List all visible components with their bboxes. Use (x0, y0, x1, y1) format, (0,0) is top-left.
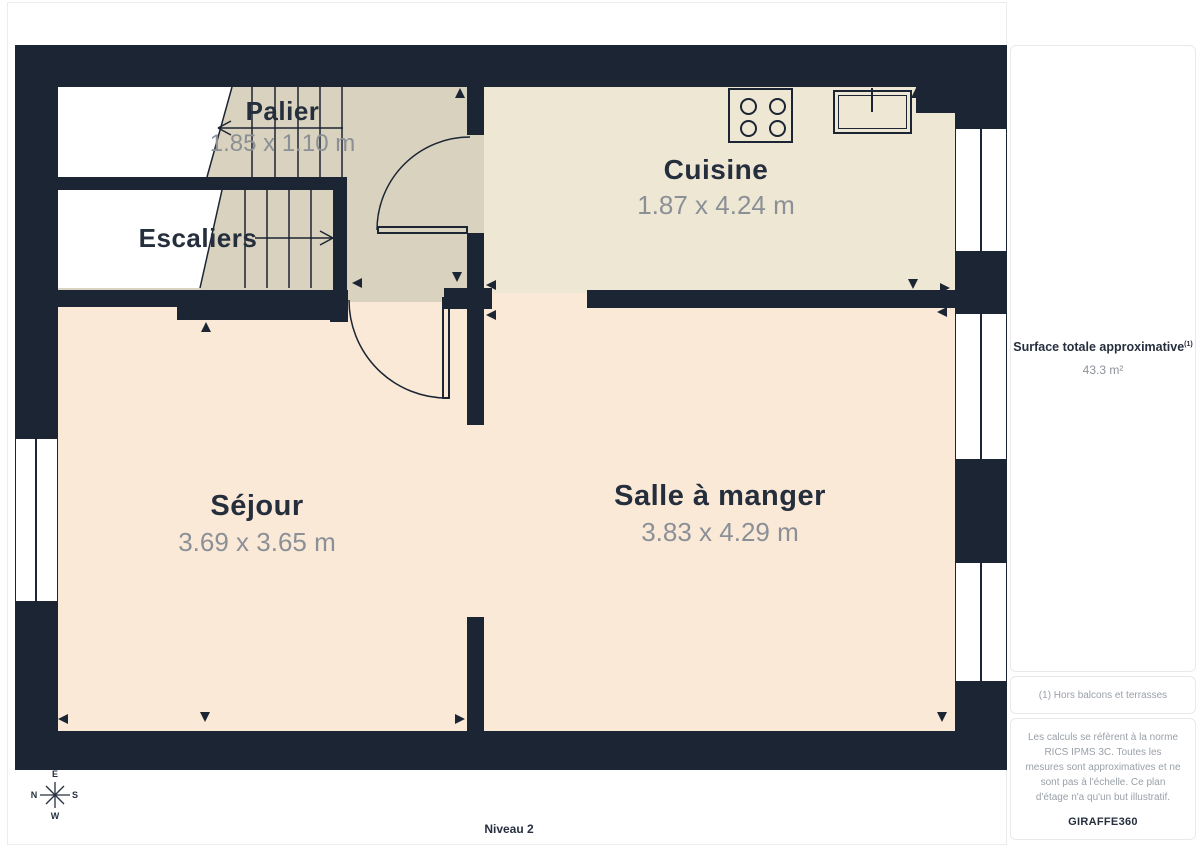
room-label-salle-a-manger: Salle à manger 3.83 x 4.29 m (570, 482, 870, 545)
dimension-arrow (200, 712, 210, 722)
room-dims: 3.69 x 3.65 m (132, 529, 382, 555)
dimension-arrow (911, 88, 921, 98)
dimension-arrow (937, 712, 947, 722)
dimension-arrow (474, 88, 484, 98)
stove-burner (740, 98, 757, 115)
sidebar-disclaimer-box: Les calculs se réfèrent à la norme RICS … (1010, 718, 1196, 840)
door-leaf (442, 297, 450, 399)
dimension-arrow (486, 280, 496, 290)
window-glass-line (980, 128, 982, 252)
room-name: Salle à manger (570, 482, 870, 511)
room-dims: 1.87 x 4.24 m (591, 192, 841, 218)
compass-letter-left: N (31, 790, 38, 800)
stove-burner (769, 120, 786, 137)
footnote-text: (1) Hors balcons et terrasses (1039, 688, 1167, 703)
compass-letter-right: S (72, 790, 78, 800)
wall-segment (58, 290, 347, 307)
brand-name: GIRAFFE (1068, 816, 1118, 828)
room-name: Escaliers (108, 225, 288, 251)
wall-segment (916, 87, 955, 113)
brand-logo: GIRAFFE360 (1068, 816, 1138, 828)
room-name: Cuisine (591, 156, 841, 184)
compass-letter-top: E (52, 769, 58, 779)
wall-segment (330, 290, 348, 322)
floor-doorway-sejour (348, 290, 444, 302)
room-label-cuisine: Cuisine 1.87 x 4.24 m (591, 156, 841, 218)
wall-segment (15, 177, 347, 190)
sidebar-footnote-box: (1) Hors balcons et terrasses (1010, 676, 1196, 714)
sink-faucet (871, 88, 873, 112)
dimension-arrow (486, 310, 496, 320)
dimension-arrow (940, 283, 950, 293)
dimension-arrow (452, 272, 462, 282)
wall-segment (587, 290, 955, 308)
disclaimer-text: Les calculs se réfèrent à la norme RICS … (1024, 730, 1182, 805)
dimension-arrow (201, 322, 211, 332)
room-name: Séjour (132, 492, 382, 521)
wall-segment (467, 233, 484, 425)
stove-burner (769, 98, 786, 115)
dimension-arrow (352, 278, 362, 288)
compass-letter-bottom: W (51, 811, 60, 821)
window-glass-line (35, 438, 37, 602)
level-label: Niveau 2 (409, 822, 609, 836)
room-label-sejour: Séjour 3.69 x 3.65 m (132, 492, 382, 555)
floor-doorway-kitchen (467, 135, 484, 233)
room-label-palier: Palier 1.85 x 1.10 m (170, 98, 395, 156)
stove-burner (740, 120, 757, 137)
room-label-escaliers: Escaliers (108, 225, 288, 251)
wall-segment (177, 307, 347, 320)
brand-suffix: 360 (1119, 816, 1138, 828)
floorplan-page: Palier 1.85 x 1.10 m Escaliers Cuisine 1… (0, 0, 1200, 849)
room-name: Palier (170, 98, 395, 124)
door-leaf (377, 226, 468, 234)
surface-total-label: Surface totale approximative(1) (1013, 340, 1192, 354)
surface-total-value: 43.3 m² (1083, 363, 1124, 377)
surface-footnote-marker: (1) (1184, 341, 1193, 348)
dimension-arrow (58, 714, 68, 724)
window-glass-line (980, 313, 982, 460)
sidebar-surface-box: Surface totale approximative(1) 43.3 m² (1010, 45, 1196, 672)
room-dims: 1.85 x 1.10 m (170, 132, 395, 156)
dimension-arrow (937, 307, 947, 317)
room-dims: 3.83 x 4.29 m (570, 519, 870, 545)
window-glass-line (980, 562, 982, 682)
dimension-arrow (455, 88, 465, 98)
dimension-arrow (908, 279, 918, 289)
surface-label-text: Surface totale approximative (1013, 340, 1184, 354)
wall-segment (467, 617, 484, 731)
dimension-arrow (455, 714, 465, 724)
